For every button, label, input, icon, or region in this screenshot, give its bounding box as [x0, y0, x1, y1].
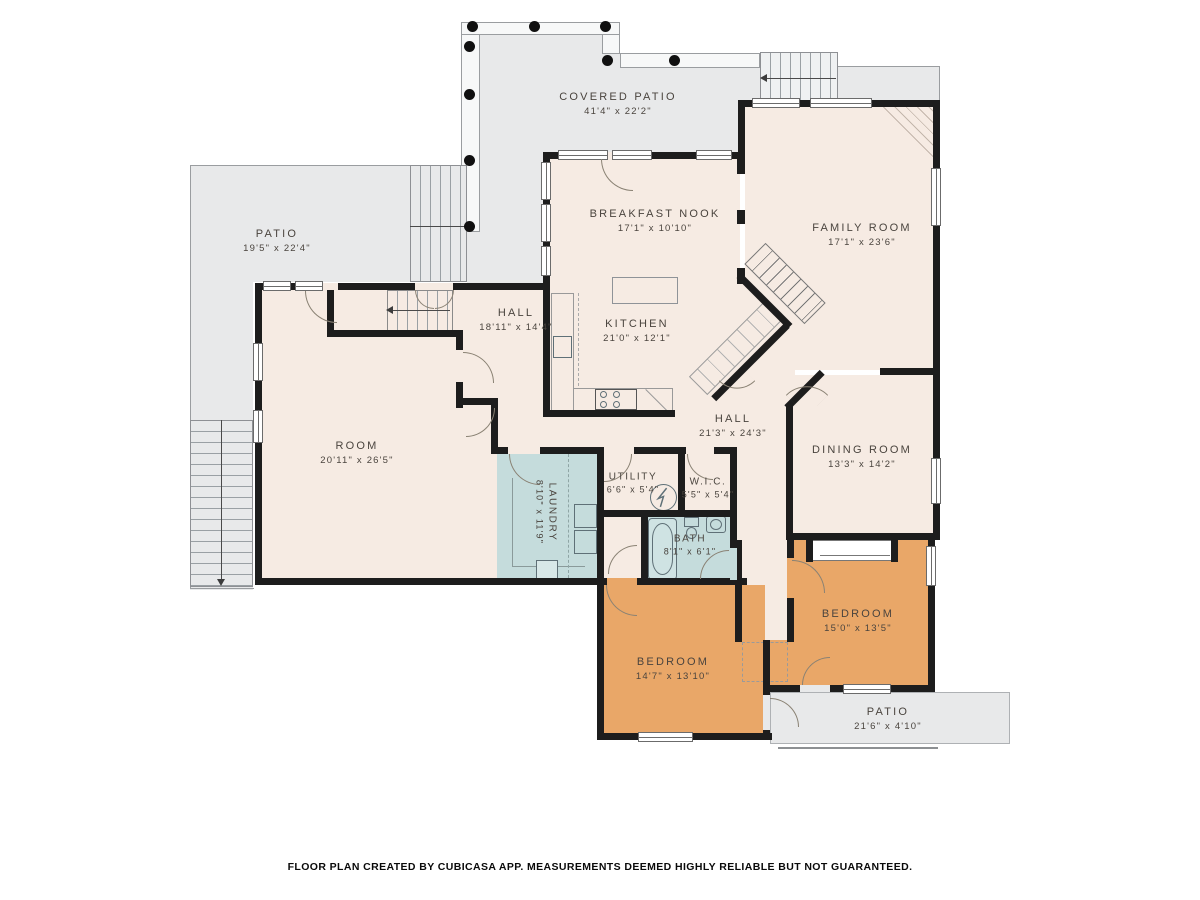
room-dims: 19'5" x 22'4" [243, 243, 311, 254]
room-dims: 41'4" x 22'2" [559, 106, 676, 117]
door-opening [415, 283, 453, 290]
window [810, 98, 872, 108]
wall [543, 410, 675, 417]
wall [790, 533, 940, 540]
stair-rail-line [410, 226, 467, 227]
patio-post [602, 55, 613, 66]
patio-edge-line [939, 66, 940, 101]
door-opening [456, 350, 463, 382]
patio-stairs-upper [410, 165, 467, 282]
kitchen-sink [553, 336, 572, 358]
label-dining-room: DINING ROOM 13'3" x 14'2" [812, 444, 912, 470]
patio-edge-line [838, 66, 940, 67]
door-opening [607, 578, 637, 585]
stair-rail-line [764, 78, 836, 79]
wall [327, 330, 463, 337]
window [253, 410, 263, 443]
window [295, 281, 323, 291]
wall [255, 578, 747, 585]
wall [737, 158, 745, 174]
window [541, 162, 551, 200]
door-opening [508, 447, 540, 454]
wall [737, 210, 745, 224]
room-name: UTILITY [607, 472, 660, 483]
window [638, 732, 693, 742]
door-opening [686, 447, 714, 454]
label-covered-patio: COVERED PATIO 41'4" x 22'2" [559, 91, 676, 117]
room-name: COVERED PATIO [559, 91, 676, 103]
wall [933, 100, 940, 380]
window [931, 458, 941, 504]
stove-burner [613, 391, 620, 398]
door-opening [800, 685, 830, 692]
room-name: ROOM [320, 440, 393, 452]
room-name: KITCHEN [603, 318, 671, 330]
room-dims: 8'1" x 6'1" [664, 547, 717, 557]
wall [880, 368, 940, 375]
room-name: PATIO [243, 228, 311, 240]
room-dims: 5'5" x 5'4" [682, 490, 735, 500]
laundry-sink [536, 560, 558, 579]
patio-post [669, 55, 680, 66]
wall [787, 598, 794, 642]
door-opening [730, 548, 737, 580]
room-dims: 17'1" x 10'10" [590, 223, 721, 234]
window [696, 150, 732, 160]
label-bedroom-right: BEDROOM 15'0" x 13'5" [822, 608, 894, 634]
kitchen-island [612, 277, 678, 304]
window [263, 281, 291, 291]
wall [806, 540, 813, 562]
room-dims: 21'6" x 4'10" [854, 721, 922, 732]
wall [597, 585, 604, 740]
label-room: ROOM 20'11" x 26'5" [320, 440, 393, 466]
stair-direction-arrow [386, 306, 393, 314]
label-bath: BATH 8'1" x 6'1" [664, 534, 717, 557]
room-dims: 8'10" x 11'9" [535, 480, 545, 544]
patio-post [529, 21, 540, 32]
room-dims: 6'6" x 5'4" [607, 485, 660, 495]
patio-post [464, 221, 475, 232]
room-name: BEDROOM [636, 656, 710, 668]
stair-direction-arrow [760, 74, 767, 82]
bath-sink-bowl [710, 519, 722, 530]
label-hall-upper: HALL 18'11" x 14'4" [479, 307, 552, 333]
window [541, 246, 551, 276]
sliding-closet [812, 540, 898, 561]
patio-railing [620, 53, 760, 68]
stove-burner [600, 391, 607, 398]
window [931, 168, 941, 226]
room-name: PATIO [854, 706, 922, 718]
patio-post [467, 21, 478, 32]
label-hall-lower: HALL 21'3" x 24'3" [699, 413, 767, 439]
dryer [574, 530, 597, 554]
patio-railing [461, 22, 620, 35]
patio-railing [602, 34, 620, 54]
room-name: BREAKFAST NOOK [590, 208, 721, 220]
room-name: LAUNDRY [547, 480, 558, 544]
room-name: HALL [699, 413, 767, 425]
window [541, 204, 551, 242]
room-dims: 18'11" x 14'4" [479, 322, 552, 333]
patio-edge-line [778, 747, 938, 749]
wall [641, 510, 648, 585]
window [752, 98, 800, 108]
label-utility: UTILITY 6'6" x 5'4" [607, 472, 660, 495]
room-dims: 17'1" x 23'6" [812, 237, 912, 248]
washer [574, 504, 597, 528]
room-name: FAMILY ROOM [812, 222, 912, 234]
window [926, 546, 936, 586]
window [253, 343, 263, 381]
label-breakfast-nook: BREAKFAST NOOK 17'1" x 10'10" [590, 208, 721, 234]
patio-edge-line [190, 588, 254, 589]
stove-burner [600, 401, 607, 408]
label-laundry: LAUNDRY 8'10" x 11'9" [535, 480, 558, 544]
stair-rail-line [221, 420, 222, 580]
room-name: DINING ROOM [812, 444, 912, 456]
laundry-dashed-line [568, 454, 570, 578]
label-bedroom-left: BEDROOM 14'7" x 13'10" [636, 656, 710, 682]
room-dims: 21'0" x 12'1" [603, 333, 671, 344]
floor-plan: COVERED PATIO 41'4" x 22'2" PATIO 19'5" … [0, 0, 1200, 900]
room-dims: 13'3" x 14'2" [812, 459, 912, 470]
patio-post [464, 89, 475, 100]
label-family-room: FAMILY ROOM 17'1" x 23'6" [812, 222, 912, 248]
room-name: HALL [479, 307, 552, 319]
room-dims: 21'3" x 24'3" [699, 428, 767, 439]
footer-disclaimer: FLOOR PLAN CREATED BY CUBICASA APP. MEAS… [0, 861, 1200, 873]
wall [491, 398, 498, 454]
room-name: BEDROOM [822, 608, 894, 620]
toilet [684, 517, 699, 527]
door-opening [604, 447, 634, 454]
patio-post [464, 155, 475, 166]
wall [738, 100, 745, 159]
wall [891, 540, 898, 562]
room-name: BATH [664, 534, 717, 545]
label-wic: W.I.C. 5'5" x 5'4" [682, 477, 735, 500]
stair-rail-line [390, 310, 450, 311]
room-dims: 15'0" x 13'5" [822, 623, 894, 634]
label-patio-bottom: PATIO 21'6" x 4'10" [854, 706, 922, 732]
patio-post [600, 21, 611, 32]
wall [787, 540, 794, 560]
stair-direction-arrow [217, 579, 225, 586]
room-dims: 14'7" x 13'10" [636, 671, 710, 682]
wall [786, 405, 793, 540]
wall [597, 510, 737, 517]
label-patio-left: PATIO 19'5" x 22'4" [243, 228, 311, 254]
room-dims: 20'11" x 26'5" [320, 455, 393, 466]
sliding-closet-door [820, 555, 890, 556]
door-opening [763, 695, 770, 730]
room-name: W.I.C. [682, 477, 735, 488]
patio-post [464, 41, 475, 52]
window [843, 684, 891, 694]
label-kitchen: KITCHEN 21'0" x 12'1" [603, 318, 671, 344]
stove-burner [613, 401, 620, 408]
